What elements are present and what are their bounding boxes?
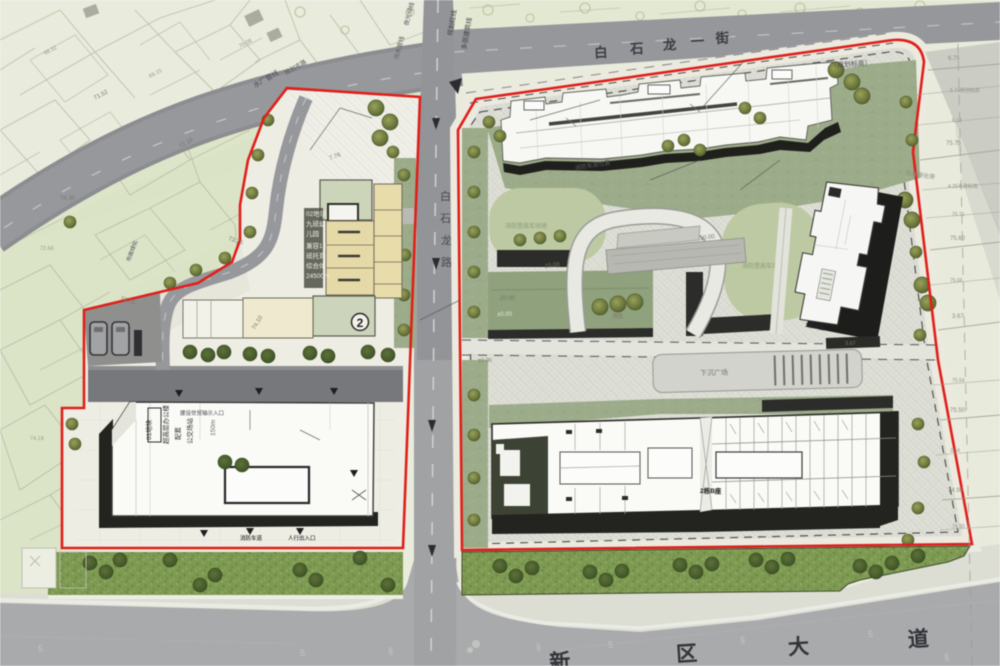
svg-text:5: 5 (868, 629, 873, 639)
svg-text:石: 石 (440, 213, 451, 225)
svg-text:75.71: 75.71 (952, 212, 965, 218)
svg-text:5: 5 (608, 640, 613, 650)
svg-text:3.64: 3.64 (950, 448, 960, 454)
svg-text:5: 5 (300, 648, 305, 658)
svg-text:±0.00: ±0.00 (497, 312, 513, 318)
svg-text:一: 一 (690, 34, 705, 50)
svg-text:配套: 配套 (173, 427, 182, 441)
svg-text:综合体: 综合体 (306, 261, 326, 270)
svg-text:道: 道 (907, 627, 929, 652)
svg-text:§: § (536, 642, 541, 652)
svg-text:兼容12: 兼容12 (306, 241, 327, 250)
svg-text:24500m: 24500m (306, 273, 330, 280)
svg-text:九班幼: 九班幼 (306, 219, 326, 228)
svg-text:75.50: 75.50 (950, 408, 966, 414)
svg-text:超高层办公楼: 超高层办公楼 (161, 405, 170, 445)
svg-text:3.67: 3.67 (952, 314, 964, 320)
svg-text:3.67: 3.67 (845, 341, 856, 347)
svg-text:±0.00: ±0.00 (478, 358, 492, 364)
svg-text:5.73规划标高: 5.73规划标高 (950, 87, 980, 94)
svg-text:5: 5 (38, 644, 43, 654)
svg-text:街: 街 (714, 29, 730, 46)
svg-text:石: 石 (629, 41, 644, 57)
svg-text:消防登高车场地: 消防登高车场地 (505, 222, 547, 230)
svg-text:建设世贸轴示入口: 建设世贸轴示入口 (180, 409, 224, 417)
svg-text:2: 2 (357, 316, 364, 330)
svg-text:74.95: 74.95 (948, 488, 964, 494)
svg-text:§: § (388, 646, 393, 656)
svg-text:75.66: 75.66 (950, 278, 963, 284)
svg-text:6.75: 6.75 (948, 56, 960, 62)
svg-text:新: 新 (549, 649, 571, 666)
svg-text:72.66: 72.66 (40, 246, 54, 252)
svg-text:75.75: 75.75 (946, 141, 962, 147)
svg-text:74.18: 74.18 (30, 436, 44, 442)
svg-text:区: 区 (676, 642, 698, 666)
svg-text:儿园: 儿园 (306, 230, 319, 238)
svg-text:6.12: 6.12 (952, 118, 962, 124)
svg-text:大: 大 (787, 635, 809, 659)
svg-text:§: § (740, 635, 745, 645)
svg-text:4.25市政标高: 4.25市政标高 (948, 183, 978, 190)
svg-text:龙: 龙 (661, 36, 677, 53)
svg-text:75.60: 75.60 (950, 236, 966, 242)
svg-text:74.90: 74.90 (952, 524, 965, 530)
svg-text:龙: 龙 (441, 234, 452, 247)
svg-text:人行出入口: 人行出入口 (288, 534, 316, 542)
svg-text:74.30: 74.30 (60, 196, 76, 202)
svg-text:§: § (944, 652, 949, 662)
svg-text:白: 白 (440, 189, 451, 203)
svg-text:公交场站: 公交场站 (185, 418, 194, 445)
svg-text:2栋B座: 2栋B座 (700, 486, 722, 495)
svg-text:150m: 150m (210, 420, 217, 436)
svg-text:20.00: 20.00 (500, 296, 516, 302)
svg-text:消防: 消防 (612, 312, 624, 320)
svg-text:班托育: 班托育 (306, 251, 326, 260)
svg-text:路: 路 (441, 256, 452, 269)
svg-text:75.54: 75.54 (952, 378, 965, 384)
svg-text:02地块: 02地块 (306, 209, 327, 218)
svg-text:白: 白 (594, 44, 608, 61)
svg-text:消防车道: 消防车道 (240, 534, 263, 542)
svg-text:01地块: 01地块 (144, 419, 153, 440)
